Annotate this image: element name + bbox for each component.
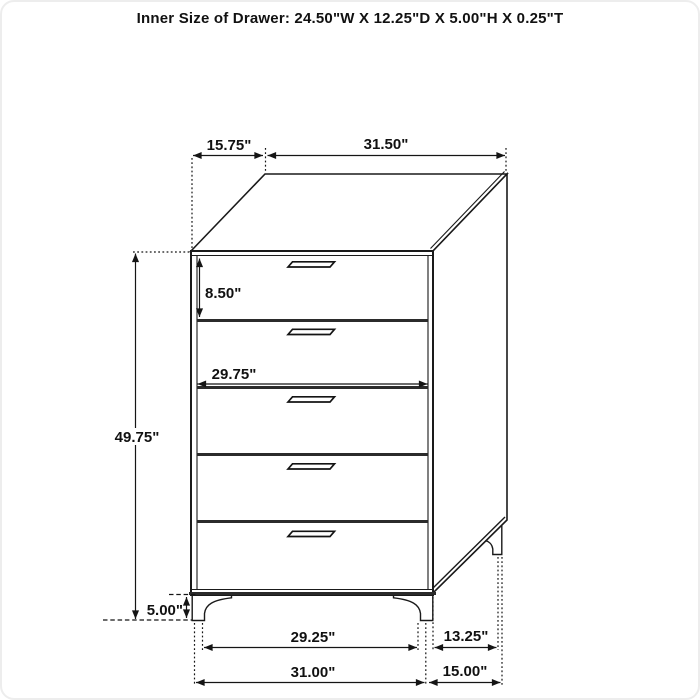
front-right-leg — [394, 595, 433, 621]
drawer-4-handle — [288, 464, 335, 469]
dim-label-drawer-height: 8.50" — [205, 285, 241, 302]
chest-front-face — [191, 251, 433, 595]
dim-label-top-width: 31.50" — [364, 136, 409, 153]
dim-leg-height: 5.00" — [147, 595, 197, 620]
dim-label-front-base-width: 31.00" — [291, 664, 336, 681]
drawer-5-handle — [288, 531, 335, 536]
drawer-1-handle — [288, 262, 335, 267]
dim-side-leg-span: 13.25" — [435, 628, 497, 648]
drawer-2-handle — [288, 329, 335, 334]
dimension-diagram-page: Inner Size of Drawer: 24.50"W X 12.25"D … — [0, 0, 700, 700]
chest-diagram-svg: 15.75" 31.50" 49.75" 8.50" 29.75" 5.00" — [0, 0, 700, 700]
dim-label-top-depth: 15.75" — [207, 137, 252, 154]
front-left-leg — [192, 595, 231, 621]
dim-label-front-leg-span: 29.25" — [291, 629, 336, 646]
dim-side-base-depth: 15.00" — [429, 663, 501, 683]
chest-drawing — [189, 172, 507, 621]
dim-label-side-leg-span: 13.25" — [444, 628, 489, 645]
dim-total-height: 49.75" — [103, 252, 192, 620]
dim-label-inner-width: 29.75" — [212, 366, 257, 383]
dim-label-total-height: 49.75" — [115, 429, 160, 446]
dim-front-base-width: 31.00" — [196, 664, 425, 683]
dim-label-side-base-depth: 15.00" — [443, 663, 488, 680]
dim-label-leg-height: 5.00" — [147, 602, 183, 619]
dim-front-leg-span: 29.25" — [204, 629, 417, 648]
drawer-3-handle — [288, 397, 335, 402]
dim-top-width: 31.50" — [268, 136, 507, 172]
